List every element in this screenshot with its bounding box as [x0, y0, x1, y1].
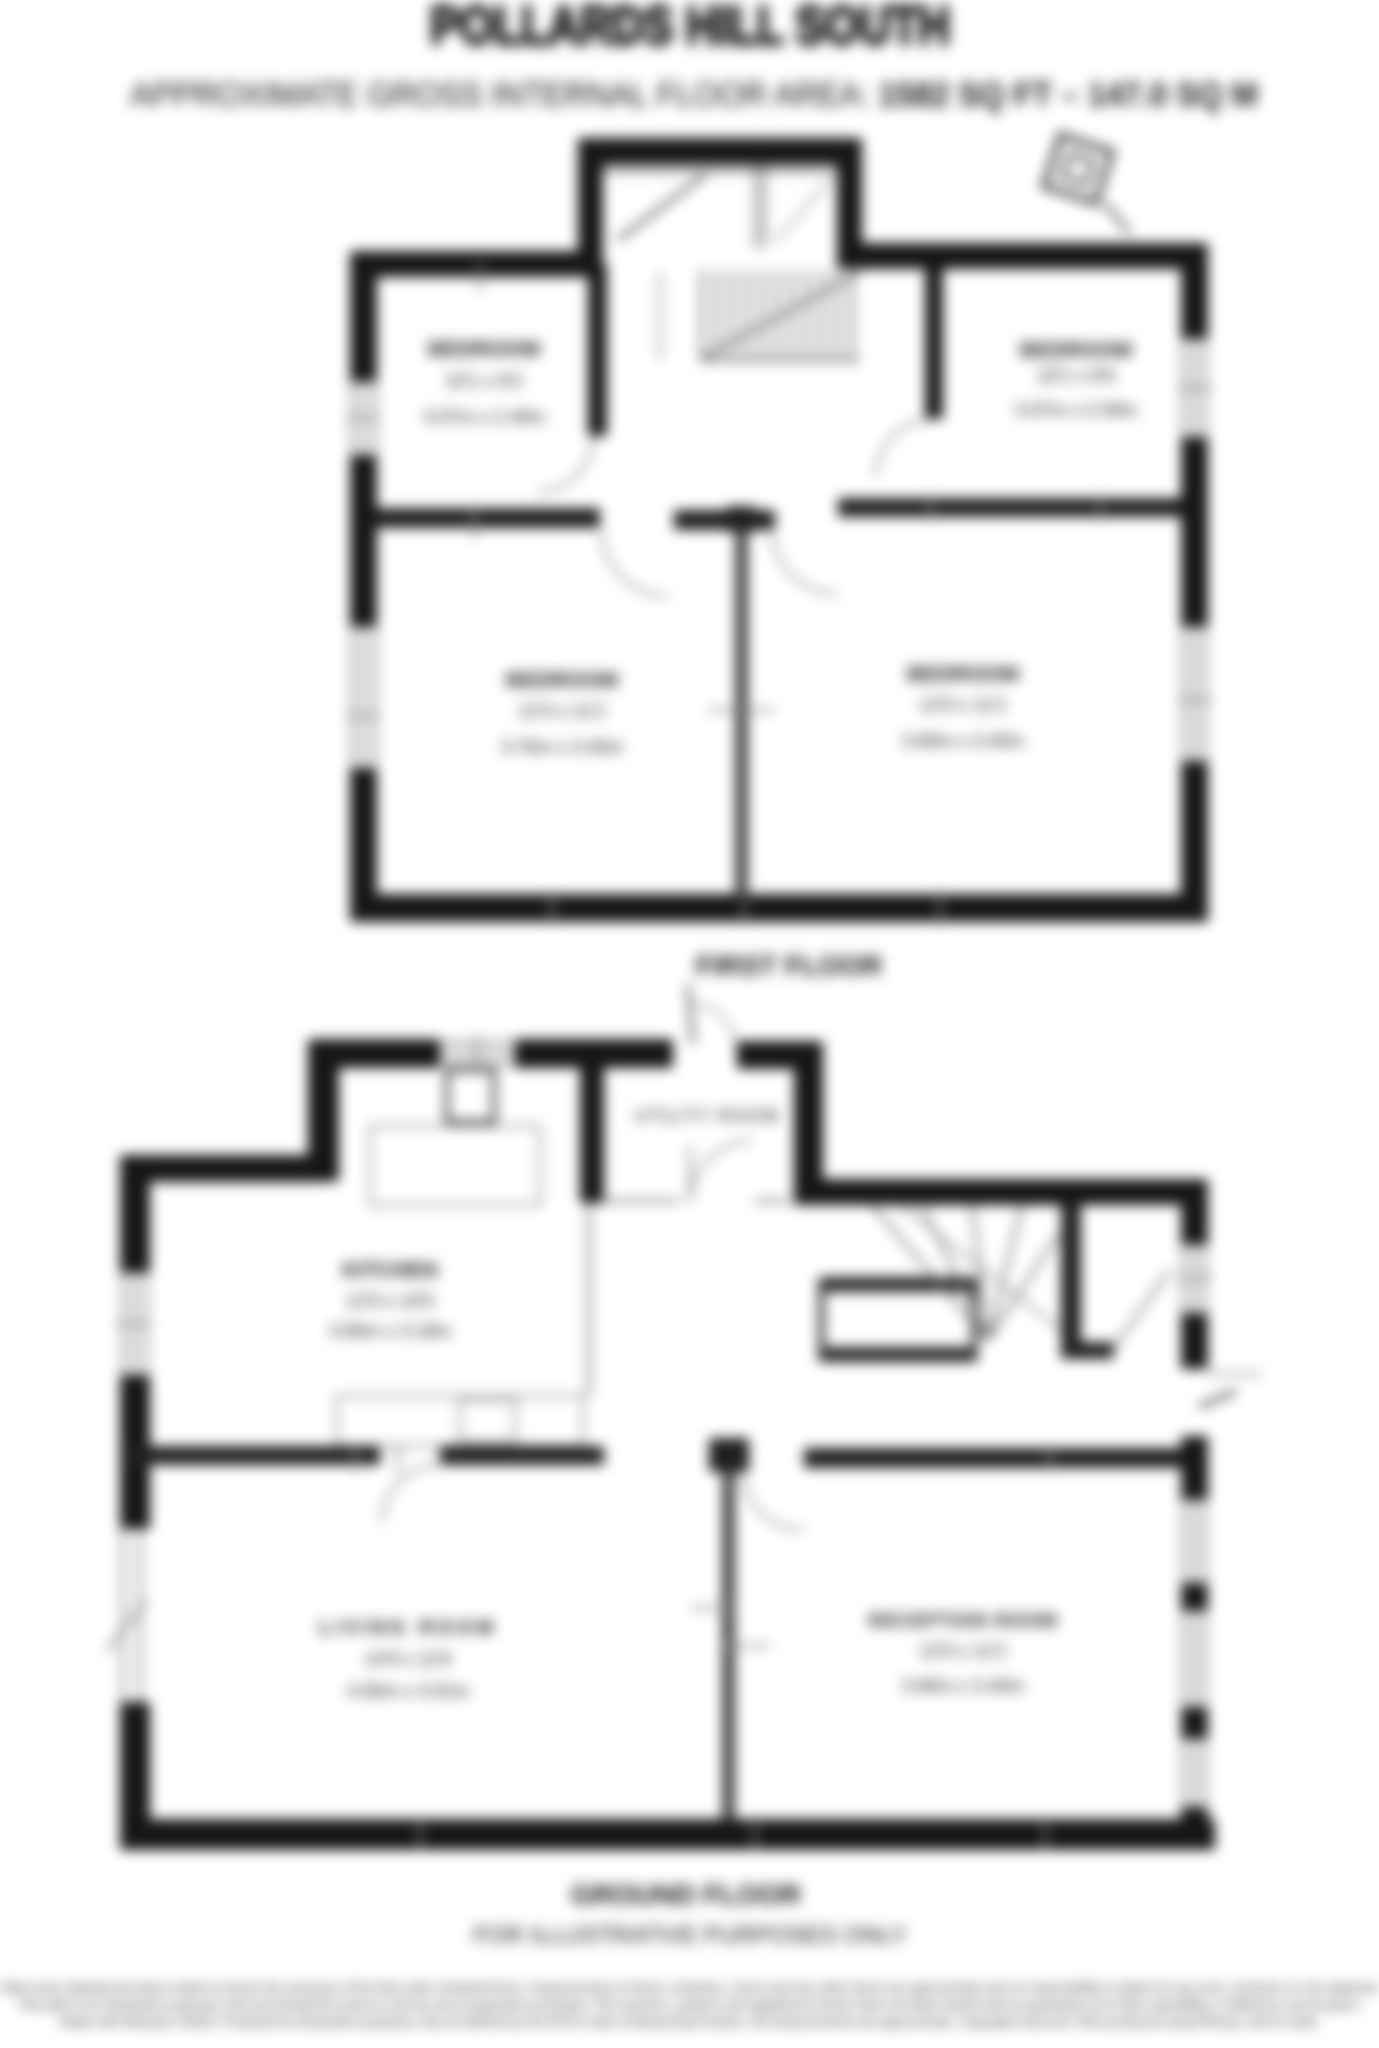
svg-text:10'1 x 8'2: 10'1 x 8'2	[445, 370, 523, 391]
svg-text:4.50m x 3.51m: 4.50m x 3.51m	[347, 1680, 469, 1701]
svg-text:UTILITY ROOM: UTILITY ROOM	[634, 1106, 780, 1126]
svg-text:BEDROOM: BEDROOM	[907, 662, 1019, 686]
svg-text:Made with Metropix ©2019. Prod: Made with Metropix ©2019. Produced for i…	[60, 2014, 1320, 2029]
svg-text:12'4 x 11'2: 12'4 x 11'2	[519, 700, 606, 721]
svg-text:This plan is for illustrative: This plan is for illustrative purposes o…	[18, 1997, 1362, 2012]
svg-text:3.66m x 3.40m: 3.66m x 3.40m	[902, 730, 1024, 751]
svg-text:BEDROOM: BEDROOM	[1020, 338, 1132, 362]
svg-text:GROUND FLOOR: GROUND FLOOR	[571, 1879, 801, 1910]
svg-text:BEDROOM: BEDROOM	[506, 668, 618, 692]
svg-text:3.66m x 3.18m: 3.66m x 3.18m	[329, 1320, 451, 1341]
svg-text:POLLARDS HILL SOUTH: POLLARDS HILL SOUTH	[430, 0, 950, 56]
svg-text:BEDROOM: BEDROOM	[428, 337, 540, 361]
svg-text:3.07m x 2.59m: 3.07m x 2.59m	[1015, 399, 1137, 420]
svg-text:14'9 x 11'6: 14'9 x 11'6	[365, 1648, 452, 1669]
svg-text:KITCHEN: KITCHEN	[342, 1258, 438, 1282]
svg-text:3.66m x 3.40m: 3.66m x 3.40m	[902, 1675, 1024, 1696]
svg-text:12'0 x 10'5: 12'0 x 10'5	[346, 1290, 434, 1311]
svg-text:RECEPTION ROOM: RECEPTION ROOM	[868, 1611, 1057, 1632]
svg-text:10'1 x 8'6: 10'1 x 8'6	[1037, 365, 1115, 386]
svg-text:LIVING ROOM: LIVING ROOM	[319, 1617, 497, 1639]
svg-text:12'0 x 11'2: 12'0 x 11'2	[920, 1640, 1007, 1661]
svg-text:FOR ILLUSTRATIVE PURPOSES ONLY: FOR ILLUSTRATIVE PURPOSES ONLY	[473, 1922, 907, 1949]
svg-text:12'0 x 11'2: 12'0 x 11'2	[920, 694, 1007, 715]
svg-text:3.76m x 3.40m: 3.76m x 3.40m	[501, 736, 623, 757]
svg-text:3.07m x 2.49m: 3.07m x 2.49m	[423, 406, 545, 427]
svg-text:FIRST FLOOR: FIRST FLOOR	[696, 950, 883, 981]
svg-text:APPROXIMATE GROSS INTERNAL FLO: APPROXIMATE GROSS INTERNAL FLOOR AREA: 1…	[130, 76, 1258, 114]
svg-text:Whilst every attempt has been: Whilst every attempt has been made to en…	[0, 1980, 1379, 1995]
